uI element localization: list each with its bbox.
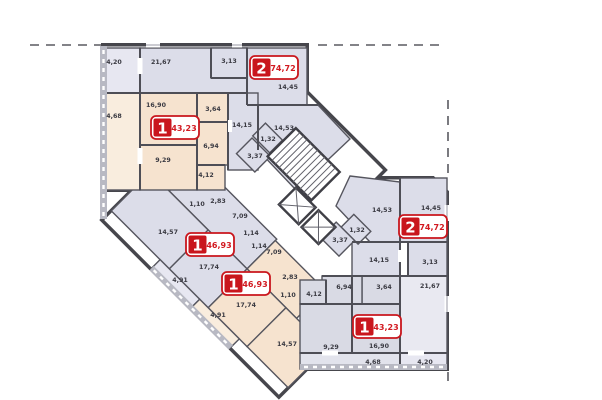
room-area-label: 4,12 bbox=[198, 172, 214, 179]
room-area-label: 7,09 bbox=[266, 249, 282, 256]
badge-number: 1 bbox=[192, 237, 202, 255]
room-area-label: 21,67 bbox=[151, 59, 171, 66]
balcony-4-20-north bbox=[103, 48, 140, 93]
apartment-badge-1-south[interactable]: 1 43,23 bbox=[353, 315, 401, 338]
badge-total-area: 43,23 bbox=[171, 124, 196, 133]
room-area-label: 3,13 bbox=[422, 259, 438, 266]
apartment-badge-2-north[interactable]: 2 74,72 bbox=[250, 56, 298, 79]
room-area-label: 4,91 bbox=[172, 277, 188, 284]
room-area-label: 1,14 bbox=[243, 230, 259, 237]
room-area-label: 4,20 bbox=[106, 59, 122, 66]
room-area-label: 3,37 bbox=[332, 237, 348, 244]
room-area-label: 14,45 bbox=[278, 84, 298, 91]
room-area-label: 14,15 bbox=[232, 122, 252, 129]
room-area-label: 7,09 bbox=[232, 213, 248, 220]
room-area-label: 17,74 bbox=[236, 302, 257, 309]
room-area-label: 17,74 bbox=[199, 264, 220, 271]
room-area-label: 16,90 bbox=[146, 102, 167, 109]
balcony-door-icon bbox=[138, 58, 143, 74]
balcony-door-icon bbox=[138, 148, 143, 164]
balcony-4-68-north bbox=[103, 93, 140, 190]
room-area-label: 1,10 bbox=[189, 201, 205, 208]
room-area-label: 14,53 bbox=[274, 125, 294, 132]
room-area-label: 9,29 bbox=[323, 344, 339, 351]
room-area-label: 14,57 bbox=[158, 229, 178, 236]
apartment-badge-2-south[interactable]: 2 74,72 bbox=[399, 215, 447, 238]
door-opening bbox=[398, 250, 402, 262]
room-area-label: 4,12 bbox=[306, 291, 322, 298]
badge-total-area: 74,72 bbox=[419, 223, 444, 232]
room-area-label: 14,53 bbox=[372, 207, 392, 214]
room-area-label: 4,20 bbox=[417, 359, 433, 366]
room-area-label: 1,14 bbox=[251, 243, 267, 250]
room-area-label: 14,45 bbox=[421, 205, 441, 212]
room-area-label: 16,90 bbox=[369, 343, 390, 350]
badge-total-area: 46,93 bbox=[242, 280, 267, 289]
badge-number: 1 bbox=[359, 319, 369, 337]
badge-total-area: 43,23 bbox=[373, 323, 398, 332]
room-area-label: 2,83 bbox=[210, 198, 226, 205]
room-area-label: 4,91 bbox=[210, 312, 226, 319]
badge-number: 2 bbox=[256, 60, 266, 78]
room-area-label: 2,83 bbox=[282, 274, 298, 281]
room-area-label: 1,10 bbox=[280, 292, 296, 299]
room-area-label: 3,64 bbox=[205, 106, 221, 113]
room-area-label: 9,29 bbox=[155, 157, 171, 164]
apartment-badge-1-mid-east[interactable]: 1 46,93 bbox=[222, 272, 270, 295]
badge-total-area: 74,72 bbox=[270, 64, 295, 73]
room-area-label: 1,32 bbox=[349, 227, 365, 234]
room-area-label: 21,67 bbox=[420, 283, 440, 290]
room-area-label: 3,37 bbox=[247, 153, 263, 160]
room-area-label: 14,15 bbox=[369, 257, 389, 264]
balcony-door-icon bbox=[322, 351, 338, 356]
room-area-label: 3,64 bbox=[376, 284, 392, 291]
room-9-29-north bbox=[140, 145, 197, 190]
apartment-badge-1-north[interactable]: 1 43,23 bbox=[151, 116, 199, 139]
balcony-door-icon bbox=[408, 351, 424, 356]
badge-number: 1 bbox=[157, 120, 167, 138]
room-area-label: 4,68 bbox=[106, 113, 122, 120]
room-area-label: 4,68 bbox=[365, 359, 381, 366]
room-area-label: 1,32 bbox=[260, 136, 276, 143]
apartment-badge-1-mid-west[interactable]: 1 46,93 bbox=[186, 233, 234, 256]
badge-total-area: 46,93 bbox=[206, 241, 231, 250]
badge-number: 2 bbox=[405, 219, 415, 237]
badge-number: 1 bbox=[228, 276, 238, 294]
room-area-label: 14,57 bbox=[277, 341, 297, 348]
floor-plan: 2 74,72 1 43,23 1 46,93 1 46,93 2 74,72 … bbox=[0, 0, 602, 400]
room-area-label: 3,13 bbox=[221, 58, 237, 65]
floor-plan-svg: 2 74,72 1 43,23 1 46,93 1 46,93 2 74,72 … bbox=[0, 0, 602, 400]
room-area-label: 6,94 bbox=[336, 284, 352, 291]
room-area-label: 6,94 bbox=[203, 143, 219, 150]
